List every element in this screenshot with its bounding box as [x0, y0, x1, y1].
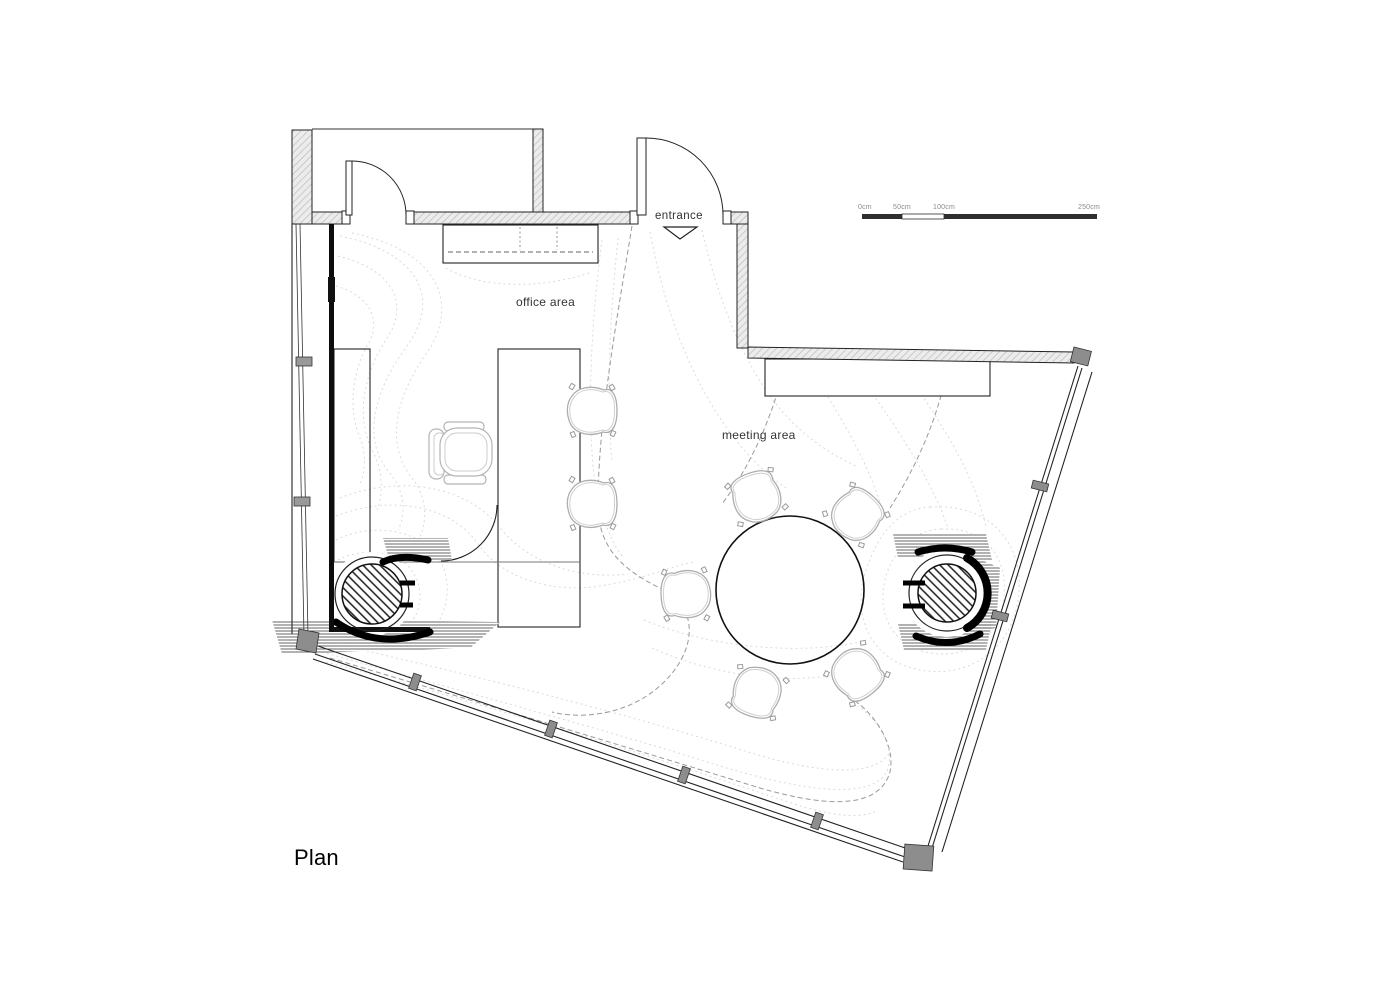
lounge-seat-hatched: [342, 564, 402, 624]
entrance-label: entrance: [655, 210, 703, 222]
furniture: [334, 225, 990, 724]
chair-icon: [820, 478, 894, 551]
wall-right-vertical: [737, 224, 748, 348]
floor-plan-drawing: [0, 0, 1390, 983]
mullion: [811, 812, 824, 830]
wall-top-a: [312, 212, 342, 224]
lounge-chair-right: [893, 534, 1000, 650]
chair-icon: [724, 660, 791, 724]
wall-left-upper: [292, 130, 312, 224]
scale-tick-0cm: 0cm: [858, 204, 872, 211]
desk-right: [498, 349, 580, 627]
chair-icon: [820, 637, 893, 710]
office-chair: [429, 422, 492, 484]
wall-mounted-panel: [328, 277, 335, 302]
column-bottom-right: [903, 844, 934, 871]
wall-top-b: [414, 212, 630, 224]
chair-icon: [722, 464, 790, 529]
entrance-arrow-icon: [664, 227, 697, 239]
mullion: [296, 357, 312, 366]
mullion: [294, 497, 310, 506]
column-bottom-left: [296, 629, 319, 653]
wall-entrance-corner: [731, 212, 748, 224]
facade-left: [292, 224, 312, 636]
floor-plan-canvas: entrance office area meeting area Plan 0…: [0, 0, 1390, 983]
mullion: [678, 766, 691, 784]
scale-tick-50cm: 50cm: [893, 204, 911, 211]
scale-bar: [862, 214, 1097, 219]
door-swing-arc: [646, 138, 723, 215]
chair-icon: [660, 567, 711, 623]
door-swing-arc: [352, 161, 406, 215]
office-area-label: office area: [516, 295, 575, 309]
plan-title: Plan: [294, 845, 339, 871]
door-leaf: [346, 161, 352, 215]
mullion: [409, 673, 422, 691]
door-office: [342, 161, 414, 224]
facade-bottom: [313, 646, 908, 862]
chair-icon: [567, 383, 617, 437]
desk-left: [334, 349, 370, 562]
meeting-table: [716, 516, 864, 664]
cabinet: [443, 225, 598, 263]
reception-counter: [765, 359, 990, 396]
desk-chairs: [567, 383, 617, 530]
contour-field: [318, 230, 1019, 816]
meeting-area-label: meeting area: [722, 428, 796, 442]
scale-tick-250cm: 250cm: [1078, 204, 1100, 211]
scale-tick-100cm: 100cm: [933, 204, 955, 211]
wall-partition-upper: [533, 129, 543, 212]
chair-icon: [567, 476, 617, 530]
door-leaf: [637, 138, 646, 215]
meeting-chairs: [660, 464, 894, 724]
lounge-seat-hatched: [918, 564, 976, 622]
